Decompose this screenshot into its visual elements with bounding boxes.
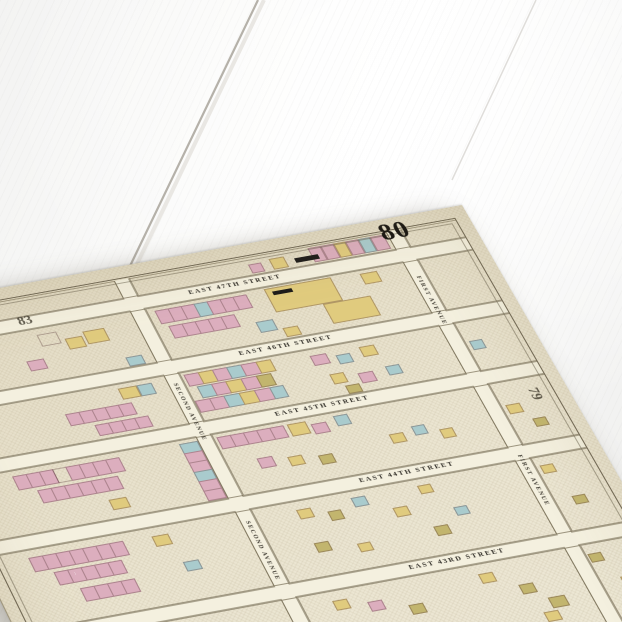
plank-gap-line-faint (452, 0, 536, 180)
photo-scene: EAST 47TH STREETEAST 46TH STREETEAST 45T… (0, 0, 622, 622)
